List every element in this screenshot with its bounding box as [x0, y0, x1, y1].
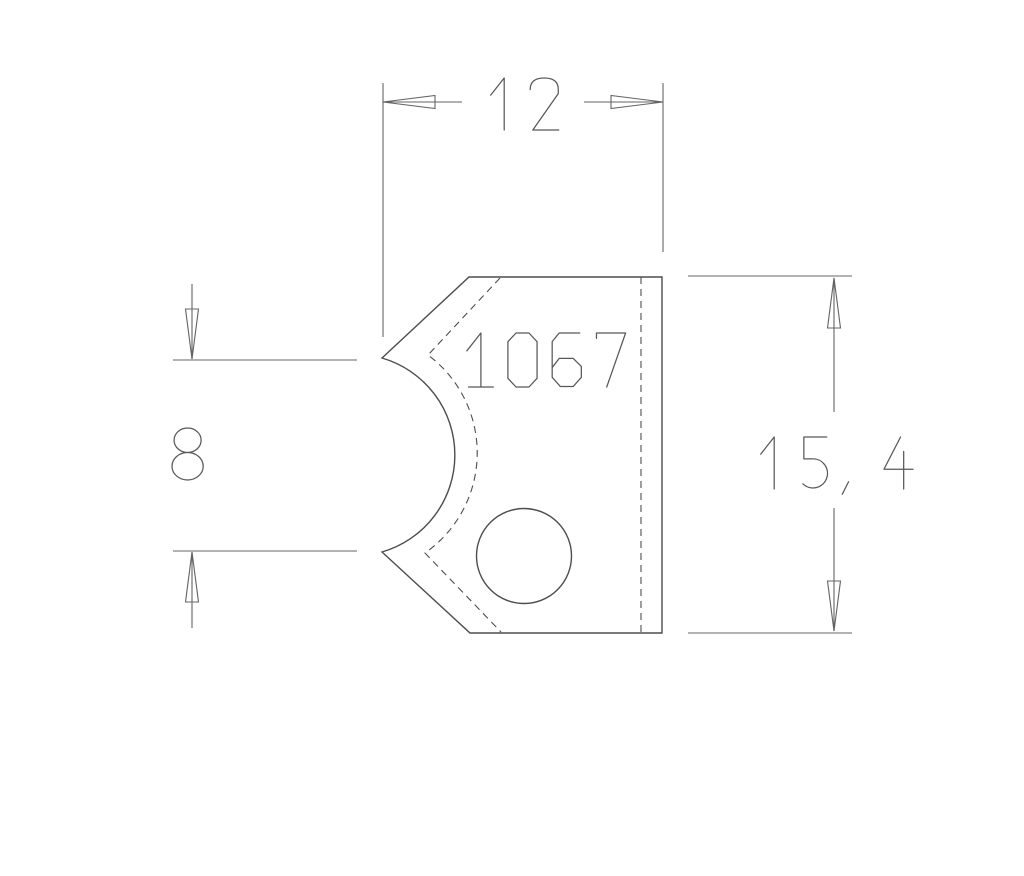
labels [172, 78, 913, 494]
bevel-dashed-line [425, 278, 501, 632]
glyph-7 [596, 333, 625, 387]
dim-notch-value [172, 428, 203, 480]
dim-notch [173, 284, 357, 628]
glyph-5 [803, 437, 828, 488]
dimensions [173, 83, 852, 633]
dim-width-value [491, 78, 559, 130]
glyph-0 [508, 333, 537, 387]
glyph-comma [842, 482, 848, 494]
drawing-page [0, 0, 1024, 876]
technical-drawing [0, 0, 1024, 876]
glyph-8 [172, 428, 203, 480]
glyph-1 [491, 78, 505, 130]
part-view [382, 277, 662, 633]
glyph-2 [530, 78, 559, 130]
glyph-1 [761, 437, 775, 489]
glyph-6 [552, 333, 581, 386]
part-outline [382, 277, 662, 633]
bore-hole [477, 509, 572, 604]
dim-height [688, 276, 852, 633]
dim-height-value [761, 437, 913, 494]
dim-width [383, 83, 663, 337]
part-number-label [467, 333, 626, 387]
glyph-4 [884, 437, 913, 489]
glyph-1 [467, 333, 493, 387]
